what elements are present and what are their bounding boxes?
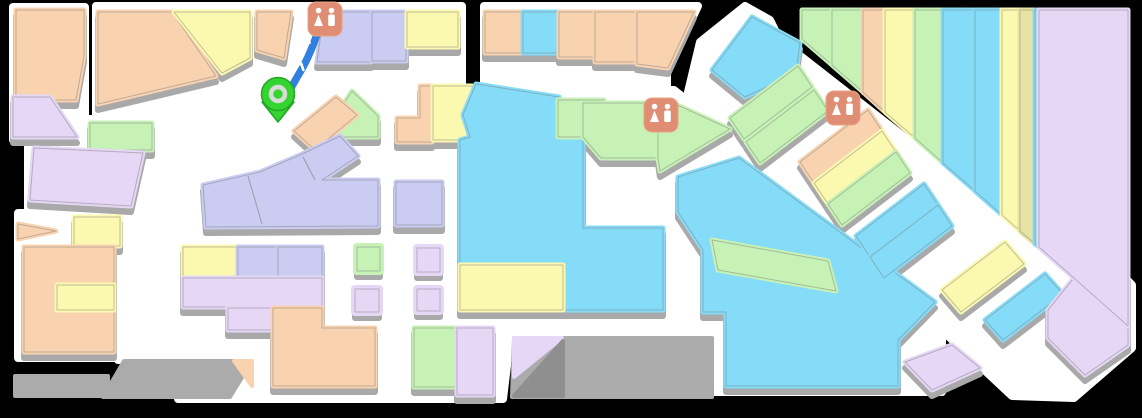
store-block[interactable]	[595, 12, 636, 62]
restroom-woman-head	[316, 8, 322, 14]
store-block[interactable]	[1020, 10, 1034, 243]
entrance-ramp	[103, 361, 252, 397]
restroom-man-head	[847, 97, 853, 103]
store-block[interactable]	[372, 12, 406, 61]
restroom-icon-bg	[826, 91, 860, 125]
restroom-man-head	[665, 104, 671, 110]
store-block[interactable]	[16, 10, 84, 100]
store-block[interactable]	[943, 10, 973, 189]
location-pin-body	[262, 78, 295, 111]
store-block[interactable]	[278, 247, 322, 277]
restroom-man-head	[329, 8, 335, 14]
store-block[interactable]	[414, 328, 457, 387]
store-block[interactable]	[485, 12, 522, 53]
restroom-icon-bg	[644, 98, 678, 132]
store-block[interactable]	[30, 148, 143, 206]
store-block[interactable]	[460, 265, 563, 310]
store-block[interactable]	[183, 278, 322, 307]
restroom-woman-head	[652, 104, 658, 110]
kiosk-block[interactable]	[357, 247, 380, 271]
store-block[interactable]	[523, 12, 558, 53]
store-block[interactable]	[863, 10, 884, 111]
store-block[interactable]	[57, 285, 114, 310]
kiosk-block[interactable]	[417, 289, 440, 311]
restroom-icon[interactable]	[308, 2, 342, 36]
store-block[interactable]	[90, 123, 152, 150]
store-block[interactable]	[1002, 10, 1019, 230]
store-block[interactable]	[396, 182, 442, 225]
mall-map-svg	[0, 0, 1142, 418]
store-block[interactable]	[183, 247, 237, 277]
store-block[interactable]	[74, 217, 120, 246]
store-block[interactable]	[559, 12, 594, 57]
store-block[interactable]	[457, 328, 493, 395]
store-block[interactable]	[228, 308, 272, 330]
mall-map-stage	[0, 0, 1142, 418]
restroom-woman-head	[834, 97, 840, 103]
restroom-icon[interactable]	[644, 98, 678, 132]
store-block[interactable]	[885, 10, 914, 137]
store-block[interactable]	[407, 12, 458, 47]
restroom-man-figure	[328, 15, 335, 27]
entrance-ramp	[15, 376, 108, 396]
store-block[interactable]	[975, 10, 1001, 214]
restroom-icon[interactable]	[826, 91, 860, 125]
store-block[interactable]	[238, 247, 277, 277]
restroom-man-figure	[846, 104, 853, 116]
store-block[interactable]	[915, 10, 942, 162]
kiosk-block[interactable]	[417, 248, 440, 272]
restroom-man-figure	[664, 111, 671, 123]
restroom-icon-bg	[308, 2, 342, 36]
kiosk-block[interactable]	[355, 289, 379, 312]
